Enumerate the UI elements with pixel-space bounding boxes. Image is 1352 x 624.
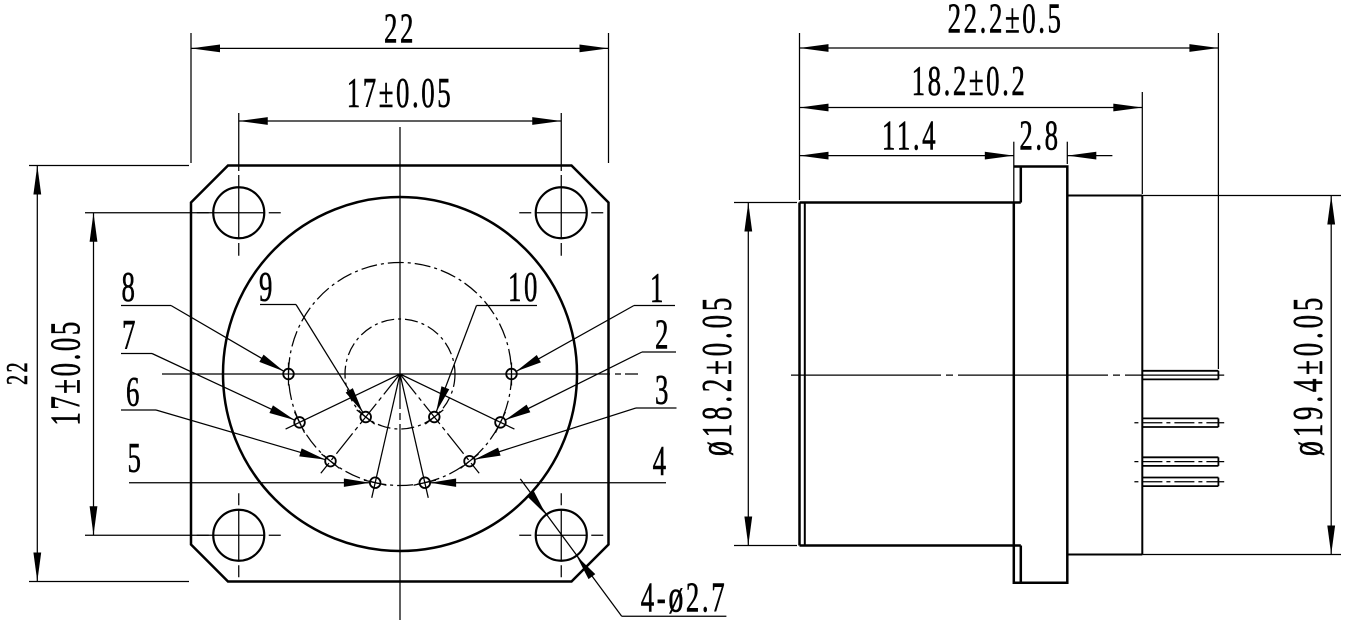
svg-text:ø18.2±0.05: ø18.2±0.05 xyxy=(689,294,741,456)
svg-text:4-ø2.7: 4-ø2.7 xyxy=(641,570,727,622)
svg-text:9: 9 xyxy=(259,264,275,310)
svg-text:22: 22 xyxy=(384,6,416,52)
svg-text:10: 10 xyxy=(508,264,540,310)
svg-text:2: 2 xyxy=(655,312,671,358)
svg-text:2.8: 2.8 xyxy=(1019,113,1060,159)
svg-text:5: 5 xyxy=(128,435,144,481)
svg-text:8: 8 xyxy=(122,264,138,310)
svg-text:18.2±0.2: 18.2±0.2 xyxy=(912,58,1028,104)
svg-text:1: 1 xyxy=(650,265,666,311)
svg-text:ø19.4±0.05: ø19.4±0.05 xyxy=(1280,294,1332,456)
svg-text:11.4: 11.4 xyxy=(882,113,938,159)
svg-text:3: 3 xyxy=(655,367,671,413)
svg-text:17±0.05: 17±0.05 xyxy=(347,70,454,116)
svg-text:17±0.05: 17±0.05 xyxy=(42,319,88,426)
svg-text:6: 6 xyxy=(126,369,142,415)
svg-text:22.2±0.5: 22.2±0.5 xyxy=(948,0,1064,42)
svg-text:4: 4 xyxy=(653,438,669,484)
svg-text:22: 22 xyxy=(0,360,34,385)
svg-text:7: 7 xyxy=(122,312,138,358)
